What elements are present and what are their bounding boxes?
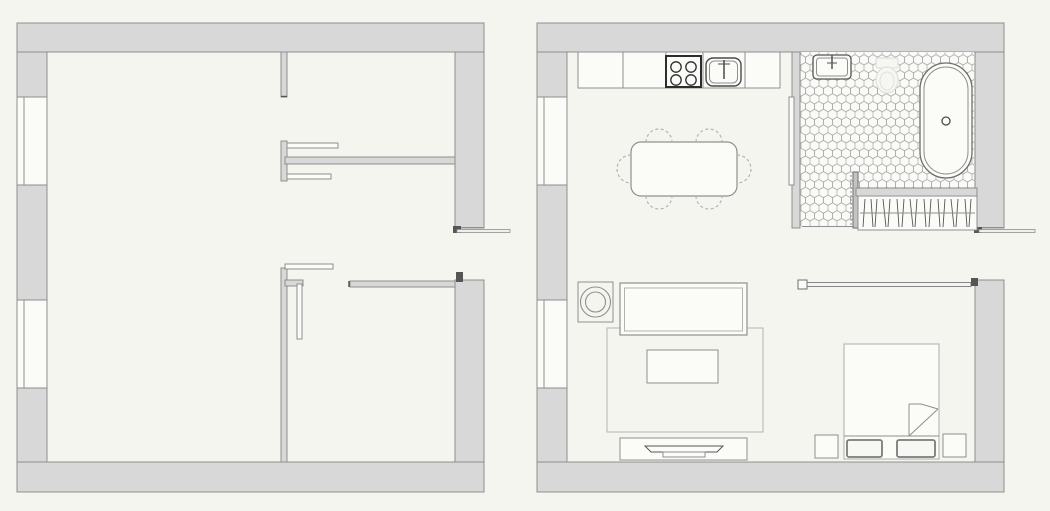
empty-floor-plan xyxy=(17,23,510,492)
window-upper xyxy=(17,97,47,185)
bathroom-pocket-door xyxy=(789,97,794,185)
dining-chair xyxy=(696,196,722,209)
partition-cap-left xyxy=(798,280,807,289)
window-upper xyxy=(537,97,567,185)
bedroom-partition xyxy=(807,283,971,287)
dining-chair xyxy=(646,196,672,209)
top-wall xyxy=(17,23,484,52)
floorplan-canvas xyxy=(0,0,1050,511)
dining-chair xyxy=(737,155,751,183)
bottom-wall xyxy=(17,462,484,492)
hall-wall-stub xyxy=(281,52,287,97)
sofa xyxy=(620,283,747,335)
furnished-floor-plan xyxy=(537,23,1035,492)
entry-door-leaf xyxy=(979,230,1035,233)
bathroom-south-wall xyxy=(856,188,977,196)
window-lower xyxy=(537,300,567,388)
nightstand xyxy=(943,434,966,457)
dining-chair xyxy=(646,129,672,142)
mid-door-leaf-upper xyxy=(287,143,338,148)
nightstand xyxy=(815,435,838,458)
lower-door-leaf-vertical xyxy=(297,284,302,339)
dining-chair xyxy=(696,129,722,142)
entry-door-leaf xyxy=(457,230,510,233)
coffee-table xyxy=(647,350,718,383)
pillow xyxy=(847,440,882,457)
side-table-circle-inner xyxy=(586,292,606,312)
tv-screen xyxy=(645,446,723,452)
toilet-bowl xyxy=(876,67,898,93)
right-wall-lower xyxy=(975,280,1004,462)
bathroom-door-jamb xyxy=(853,172,858,228)
entry-lower-hinge-block xyxy=(456,272,463,282)
lower-wall-vertical xyxy=(281,268,287,462)
top-wall xyxy=(537,23,1004,52)
partition-cap-right xyxy=(971,278,978,286)
right-wall-upper xyxy=(975,52,1004,228)
bathtub-drain xyxy=(942,117,950,125)
side-table xyxy=(578,282,613,322)
lower-wall-horizontal xyxy=(350,281,455,287)
tv-stand xyxy=(663,452,705,457)
mid-door-leaf-lower xyxy=(287,174,331,179)
right-wall-upper xyxy=(455,52,484,228)
bottom-wall xyxy=(537,462,1004,492)
lower-door-leaf-top xyxy=(285,264,333,269)
pillow xyxy=(897,440,935,457)
window-lower xyxy=(17,300,47,388)
mid-wall xyxy=(285,157,455,164)
floorplan-svg xyxy=(0,0,1050,511)
dining-chair xyxy=(617,155,631,183)
dining-table xyxy=(631,142,737,196)
right-wall-lower xyxy=(455,280,484,462)
